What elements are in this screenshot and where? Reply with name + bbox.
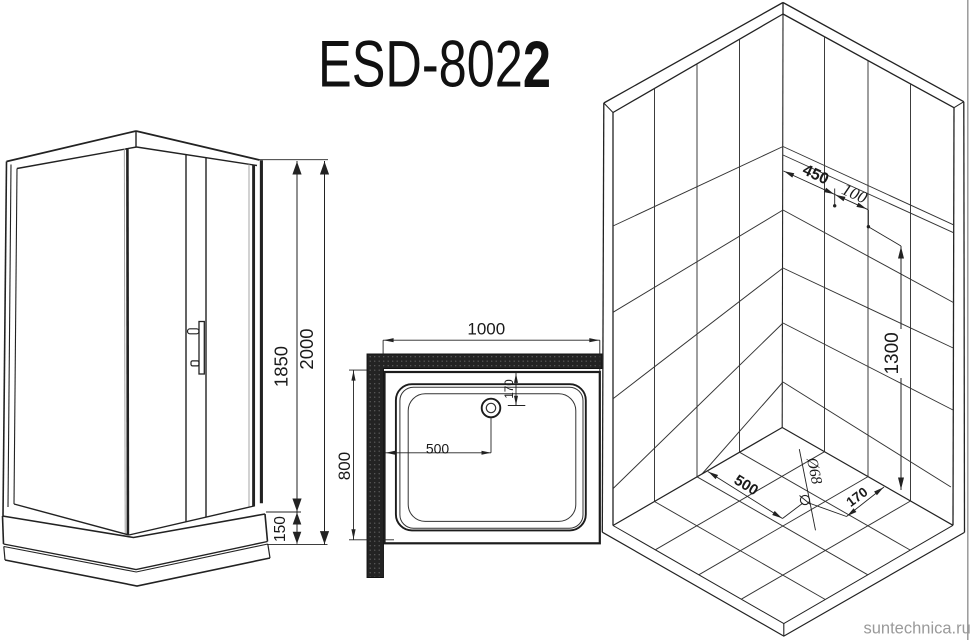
svg-text:1300: 1300: [882, 332, 903, 374]
svg-text:2000: 2000: [296, 328, 317, 369]
svg-text:1850: 1850: [271, 346, 292, 387]
svg-text:100: 100: [839, 180, 871, 208]
svg-text:450: 450: [800, 162, 831, 189]
svg-text:500: 500: [426, 440, 450, 456]
svg-text:800: 800: [335, 452, 354, 480]
svg-text:150: 150: [272, 516, 289, 542]
svg-text:170: 170: [504, 379, 516, 398]
svg-text:suntechnica.ru: suntechnica.ru: [864, 620, 970, 638]
svg-text:500: 500: [731, 472, 761, 500]
svg-text:1000: 1000: [467, 319, 505, 338]
svg-text:ESD-8022: ESD-8022: [318, 28, 551, 101]
